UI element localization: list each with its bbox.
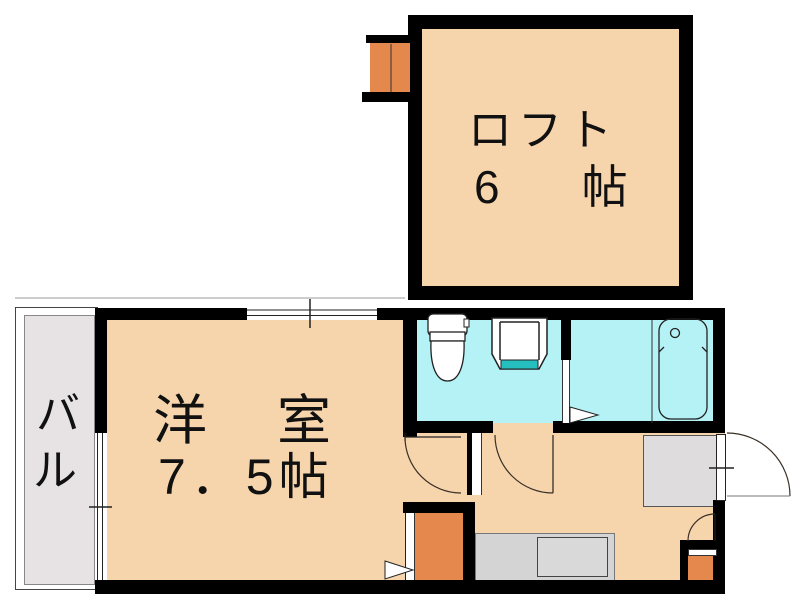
wall-closet-top xyxy=(680,540,717,549)
loft-room xyxy=(408,15,693,300)
western-room-name-label: 洋 室 xyxy=(153,393,339,450)
entrance-door-leaf xyxy=(716,434,726,501)
wall-bottom xyxy=(95,580,725,594)
loft-name-label: ロフト xyxy=(468,108,618,154)
wall-step-right xyxy=(463,502,475,582)
loft-ladder-bar-bottom xyxy=(362,92,412,102)
balcony-label-char2: ル xyxy=(33,448,77,494)
closet-door-strip xyxy=(688,549,717,556)
loft-ladder-bar-top xyxy=(366,35,412,43)
wall-top-left xyxy=(95,308,247,320)
wall-top-right xyxy=(377,308,725,320)
balcony-label-char1: バ xyxy=(36,392,80,438)
wall-bath-divider xyxy=(561,315,571,360)
window-top xyxy=(247,308,377,320)
loft-ladder xyxy=(370,43,410,92)
partition-door-strip xyxy=(472,433,482,495)
wall-right-upper xyxy=(713,320,725,433)
wall-closet-left xyxy=(680,549,688,582)
wall-room-right xyxy=(403,308,417,437)
window-balcony xyxy=(95,433,107,580)
loft-size-label: 6 帖 xyxy=(474,163,646,211)
counter-unit xyxy=(537,537,608,577)
slider-door-strip xyxy=(405,513,415,580)
washroom-floor xyxy=(415,318,563,423)
wall-left-upper xyxy=(95,320,107,433)
bath-door-strip xyxy=(562,360,570,423)
wall-washroom-bottom-left xyxy=(417,421,493,433)
floorplan: ロフト 6 帖 洋 室 7．5帖 バ ル xyxy=(0,0,800,605)
bathroom-floor xyxy=(569,318,715,425)
step-box xyxy=(413,512,463,582)
entry-genkan-floor xyxy=(643,435,718,507)
western-room-size-label: 7．5帖 xyxy=(158,451,334,504)
wall-washroom-bottom-right xyxy=(553,421,720,433)
